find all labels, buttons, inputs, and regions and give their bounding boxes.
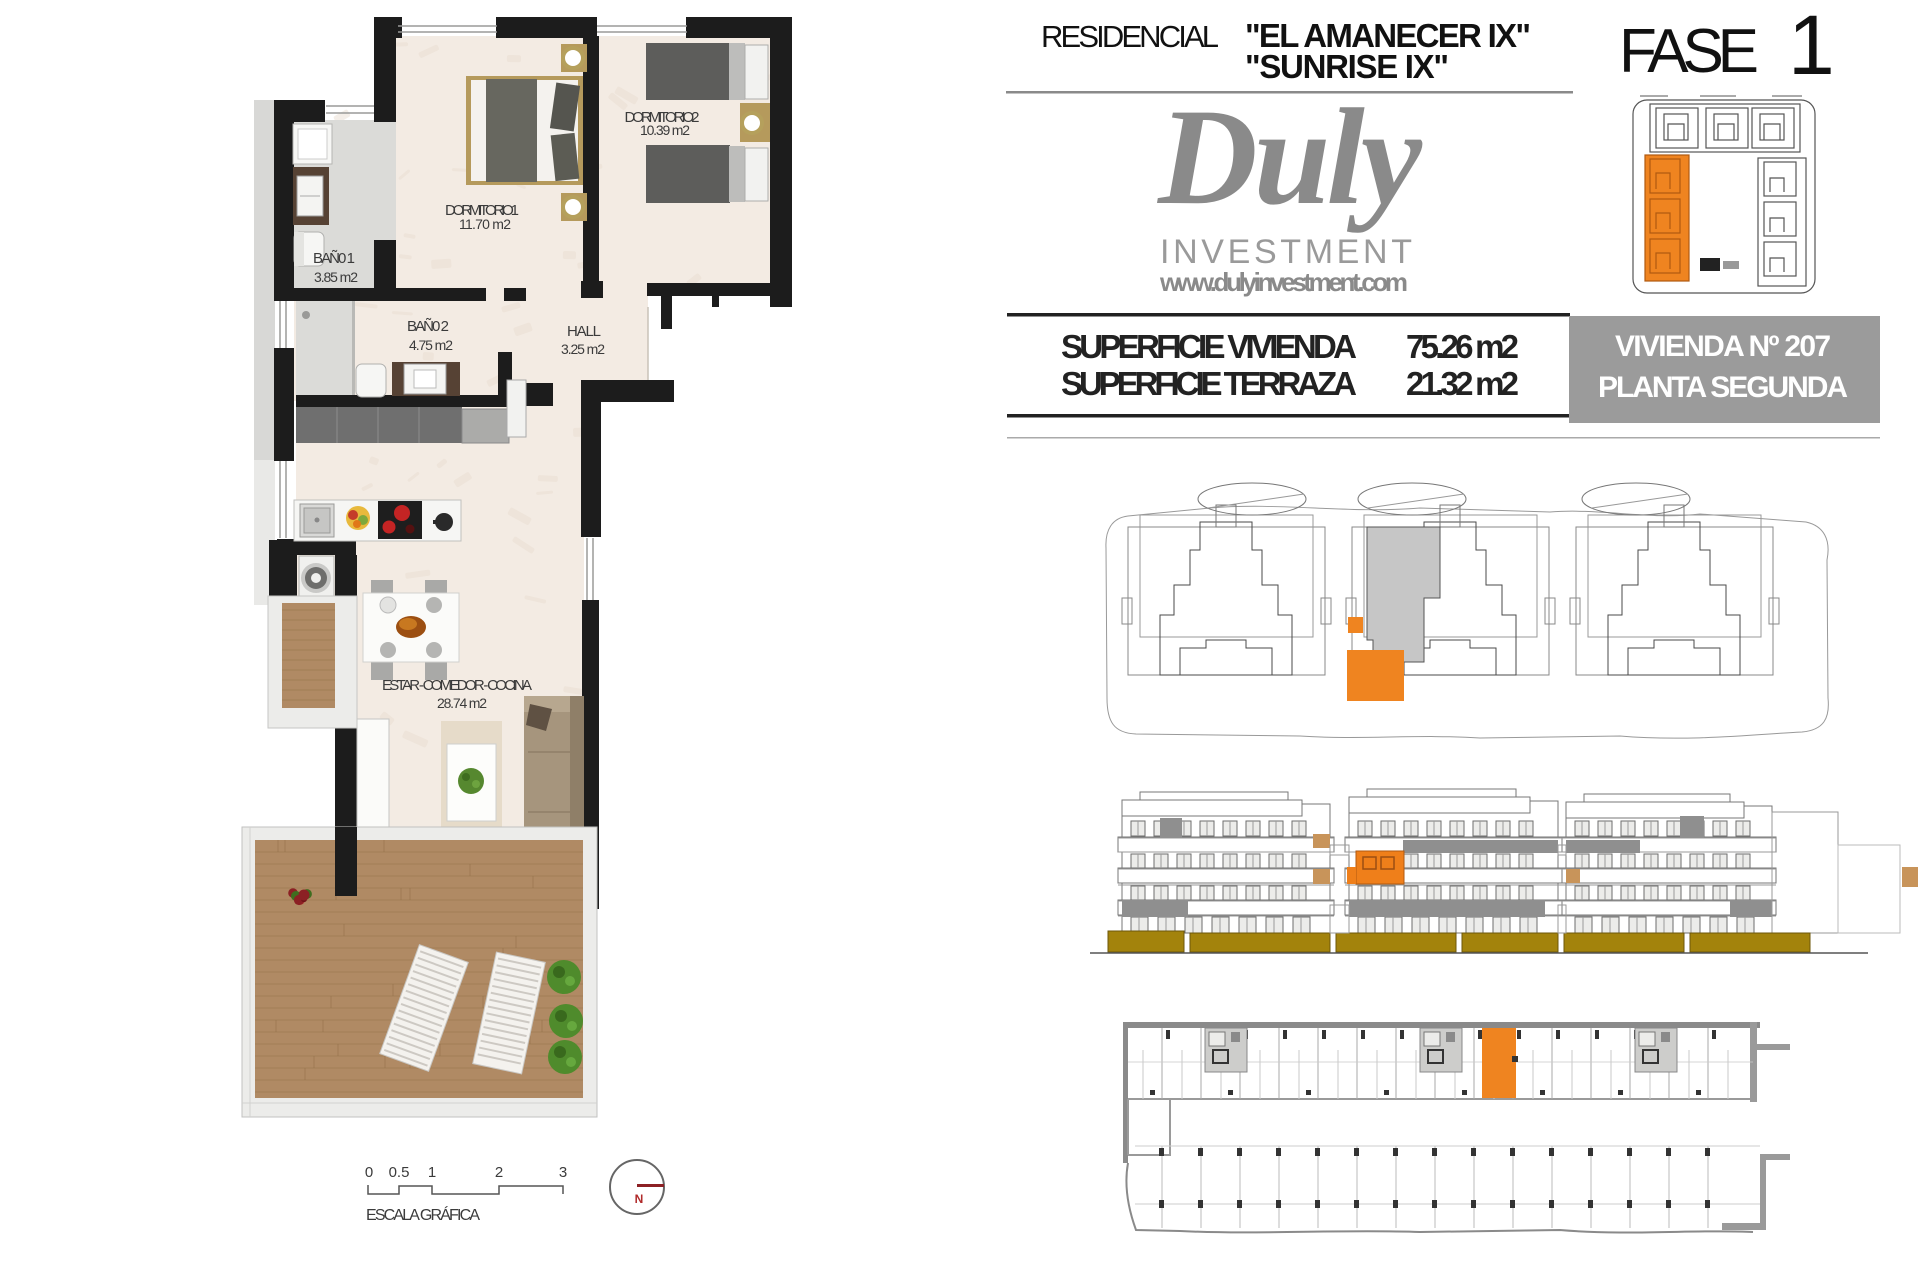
svg-text:ESCALA GRÁFICA: ESCALA GRÁFICA: [366, 1205, 480, 1224]
svg-text:RESIDENCIAL: RESIDENCIAL: [1041, 19, 1219, 54]
svg-text:HALL: HALL: [567, 323, 601, 340]
svg-text:21.32 m2: 21.32 m2: [1406, 365, 1519, 402]
svg-text:BAÑ0 2: BAÑ0 2: [407, 318, 449, 335]
svg-text:ESTAR - COMEDOR - COCINA: ESTAR - COMEDOR - COCINA: [382, 677, 532, 694]
svg-text:0: 0: [365, 1164, 373, 1181]
svg-text:3: 3: [559, 1164, 567, 1181]
svg-text:FASE: FASE: [1619, 17, 1759, 86]
svg-text:28.74 m2: 28.74 m2: [437, 695, 487, 711]
svg-text:1: 1: [1788, 0, 1835, 92]
svg-text:PLANTA SEGUNDA: PLANTA SEGUNDA: [1598, 371, 1848, 404]
svg-text:N: N: [635, 1192, 644, 1206]
svg-text:10.39 m2: 10.39 m2: [640, 122, 690, 138]
svg-text:INVESTMENT: INVESTMENT: [1160, 233, 1412, 271]
svg-text:VIVIENDA Nº 207: VIVIENDA Nº 207: [1615, 330, 1831, 363]
svg-text:4.75 m2: 4.75 m2: [409, 337, 453, 353]
svg-text:1: 1: [428, 1164, 436, 1181]
svg-text:3.25 m2: 3.25 m2: [561, 341, 605, 357]
svg-text:SUPERFICIE VIVIENDA: SUPERFICIE VIVIENDA: [1061, 328, 1357, 365]
svg-text:11.70 m2: 11.70 m2: [459, 216, 511, 232]
svg-text:BAÑ0 1: BAÑ0 1: [313, 250, 355, 267]
svg-text:0.5: 0.5: [389, 1164, 410, 1181]
svg-text:2: 2: [495, 1164, 503, 1181]
svg-text:3.85 m2: 3.85 m2: [314, 269, 358, 285]
svg-text:75.26 m2: 75.26 m2: [1406, 328, 1519, 365]
svg-text:www.dulyinvestment.com: www.dulyinvestment.com: [1159, 267, 1408, 297]
svg-text:SUPERFICIE TERRAZA: SUPERFICIE TERRAZA: [1061, 365, 1357, 402]
svg-text:Duly: Duly: [1156, 80, 1423, 233]
